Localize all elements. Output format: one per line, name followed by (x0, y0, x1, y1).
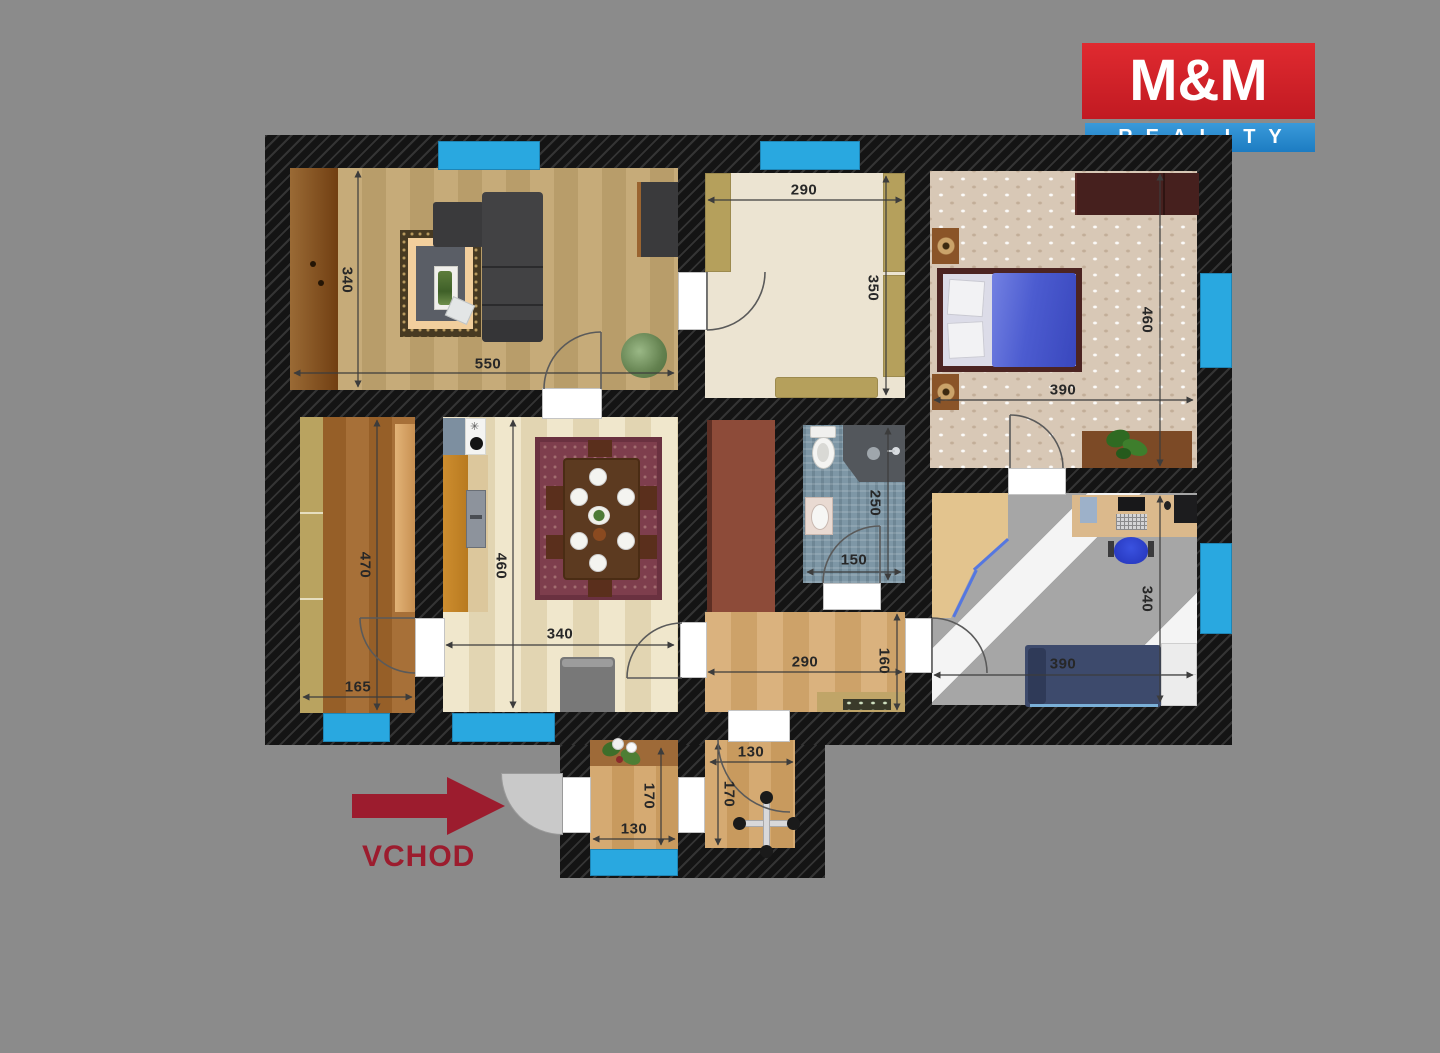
dimension-label: 290 (792, 655, 819, 670)
dining-table (563, 458, 640, 580)
basin (811, 504, 829, 530)
dimension-label: 160 (877, 648, 892, 675)
desk-paper (1080, 497, 1097, 523)
wardrobe-divider (1163, 173, 1165, 215)
blanket (992, 273, 1076, 367)
table-lamp (937, 237, 955, 255)
sofa-seam (482, 266, 543, 268)
coat-rack-bar (763, 796, 770, 852)
entrance-arrow-head (447, 777, 505, 835)
logo-title: M&M (1082, 43, 1315, 119)
door-opening-living-closet (678, 272, 707, 330)
dimension-label: 170 (642, 783, 657, 810)
burner (470, 437, 483, 450)
closet-cabinet-left (705, 173, 731, 272)
mouse (1164, 501, 1171, 510)
dining-chair (546, 486, 563, 510)
nightstand (932, 374, 959, 410)
dimension-label: 150 (841, 553, 868, 568)
pantry-cabinet (707, 420, 775, 612)
fridge-top (562, 659, 613, 667)
window-marker (1200, 543, 1232, 634)
door-opening-living-kitchen (542, 388, 602, 419)
dimension-label: 170 (722, 781, 737, 808)
flower-bowl (588, 506, 610, 525)
window-marker (452, 713, 555, 742)
window-marker (590, 849, 678, 876)
entry-plant-flower (626, 742, 637, 753)
logo-red-box: M&M (1082, 43, 1315, 119)
table-plant (438, 271, 452, 305)
sofa-chaise (433, 202, 484, 247)
dimension-label: 350 (866, 275, 881, 302)
double-bed (937, 268, 1082, 372)
dimension-label: 340 (547, 627, 574, 642)
oven (466, 490, 486, 548)
entrance-label: VCHOD (362, 840, 475, 874)
plate (617, 532, 635, 550)
cooktop: ✳ (465, 418, 486, 455)
faucet-icon: ✳ (470, 420, 479, 433)
sink-cabinet (443, 418, 465, 455)
kitchen-counter (443, 455, 468, 612)
dimension-label: 470 (358, 552, 373, 579)
entry-plant-flower (612, 738, 624, 750)
window-marker (323, 713, 390, 742)
plate (570, 488, 588, 506)
sofa-seam (482, 304, 543, 306)
tv-cabinet (637, 182, 678, 257)
shelf-divider (300, 598, 323, 600)
toilet-bowl (812, 437, 835, 469)
door-opening-kitchen-hall (680, 622, 707, 678)
floor-plan: M&M REALITY (0, 0, 1440, 1053)
dining-chair (640, 486, 657, 510)
toilet-seat (817, 443, 829, 462)
door-opening-entrance (560, 777, 591, 833)
living-plant (621, 333, 667, 378)
door-opening-bathroom (823, 583, 881, 610)
plate (570, 532, 588, 550)
pillow (947, 279, 985, 317)
shoe-rack (843, 699, 891, 710)
dimension-label: 550 (475, 357, 502, 372)
oven-handle (470, 515, 482, 519)
daybed (1025, 645, 1161, 707)
wardrobe-knob (318, 280, 324, 286)
coat-hook (760, 845, 773, 858)
window-marker (1200, 273, 1232, 368)
entrance-arrow (352, 794, 447, 818)
closet-cabinet-bottom (775, 377, 878, 398)
closet-cabinet-right-lower (883, 275, 905, 377)
daybed-trim (1030, 704, 1158, 707)
shelf-divider (1162, 674, 1196, 675)
coat-hook (787, 817, 800, 830)
shower-rail (887, 450, 895, 452)
pc-tower (1174, 495, 1197, 523)
closet-cabinet-right-upper (883, 173, 905, 272)
dimension-label: 460 (1140, 307, 1155, 334)
keyboard (1116, 514, 1147, 530)
sofa-body (482, 192, 543, 342)
door-opening-storage-kitchen (415, 618, 445, 677)
dining-chair (588, 580, 612, 597)
window-marker (438, 141, 540, 170)
monitor (1118, 497, 1145, 511)
entry-plant-berry (616, 756, 623, 763)
living-wardrobe (290, 168, 338, 390)
sofa-armrest (482, 320, 543, 342)
shower-drain (867, 447, 880, 460)
washbasin (805, 497, 833, 535)
plate (589, 468, 607, 486)
door-opening-hall-porch (728, 710, 790, 742)
office-chair (1114, 537, 1148, 564)
door-opening-porch-porch (678, 777, 705, 833)
dimension-label: 250 (868, 490, 883, 517)
table-lamp (937, 383, 955, 401)
storage-wardrobe (300, 417, 323, 713)
dining-chair (546, 535, 563, 559)
plate (589, 554, 607, 572)
bedroom-plant (1116, 448, 1131, 459)
office-shelf (1161, 643, 1197, 706)
window-marker (760, 141, 860, 170)
pillow (947, 321, 985, 359)
door-opening-bedroom-office (1008, 468, 1066, 495)
chair-armrest (1148, 541, 1154, 557)
dimension-label: 390 (1050, 657, 1077, 672)
dining-chair (640, 535, 657, 559)
storage-bench (395, 424, 415, 612)
dining-chair (588, 440, 612, 457)
nightstand (932, 228, 959, 264)
dimension-label: 340 (340, 267, 355, 294)
entrance-door-swing (501, 773, 563, 835)
plate (617, 488, 635, 506)
teapot (593, 528, 606, 541)
dimension-label: 165 (345, 680, 372, 695)
dimension-label: 340 (1140, 586, 1155, 613)
shelf-divider (300, 512, 323, 514)
fridge (560, 657, 615, 712)
dimension-label: 130 (621, 822, 648, 837)
dimension-label: 460 (494, 553, 509, 580)
wardrobe-knob (310, 261, 316, 267)
coat-hook (760, 791, 773, 804)
coat-hook (733, 817, 746, 830)
bedroom-wardrobe (1075, 173, 1199, 215)
dimension-label: 290 (791, 183, 818, 198)
dimension-label: 390 (1050, 383, 1077, 398)
door-opening-hall-office (905, 618, 932, 673)
daybed-pillow (1028, 648, 1046, 704)
dimension-label: 130 (738, 745, 765, 760)
